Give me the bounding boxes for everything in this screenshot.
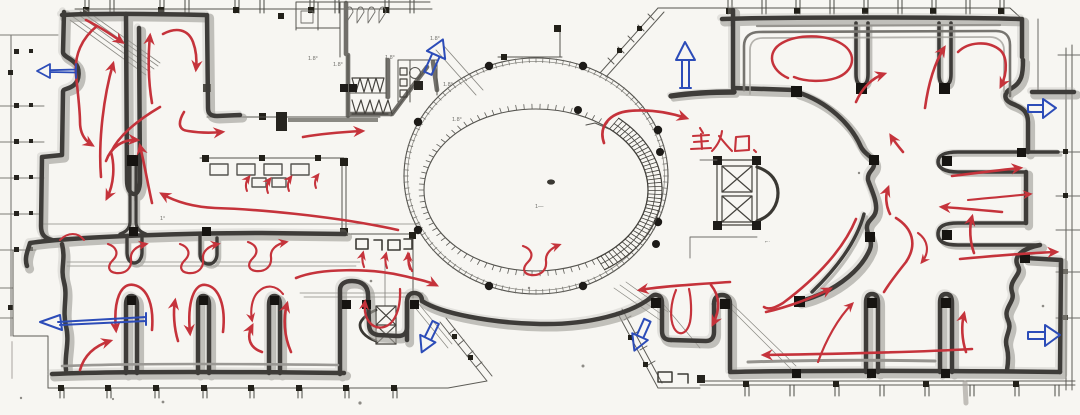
svg-text:1.8°: 1.8° (385, 55, 395, 61)
svg-text:1.8°: 1.8° (430, 36, 440, 42)
svg-text:1.8°: 1.8° (443, 82, 453, 88)
svg-text:1—: 1— (535, 204, 544, 210)
svg-text:1.8°: 1.8° (452, 117, 462, 123)
svg-text:⌐·: ⌐· (765, 239, 770, 245)
svg-text:1.8°: 1.8° (333, 62, 343, 68)
svg-text:1.8°: 1.8° (308, 56, 318, 62)
svg-text:1°: 1° (160, 216, 165, 222)
